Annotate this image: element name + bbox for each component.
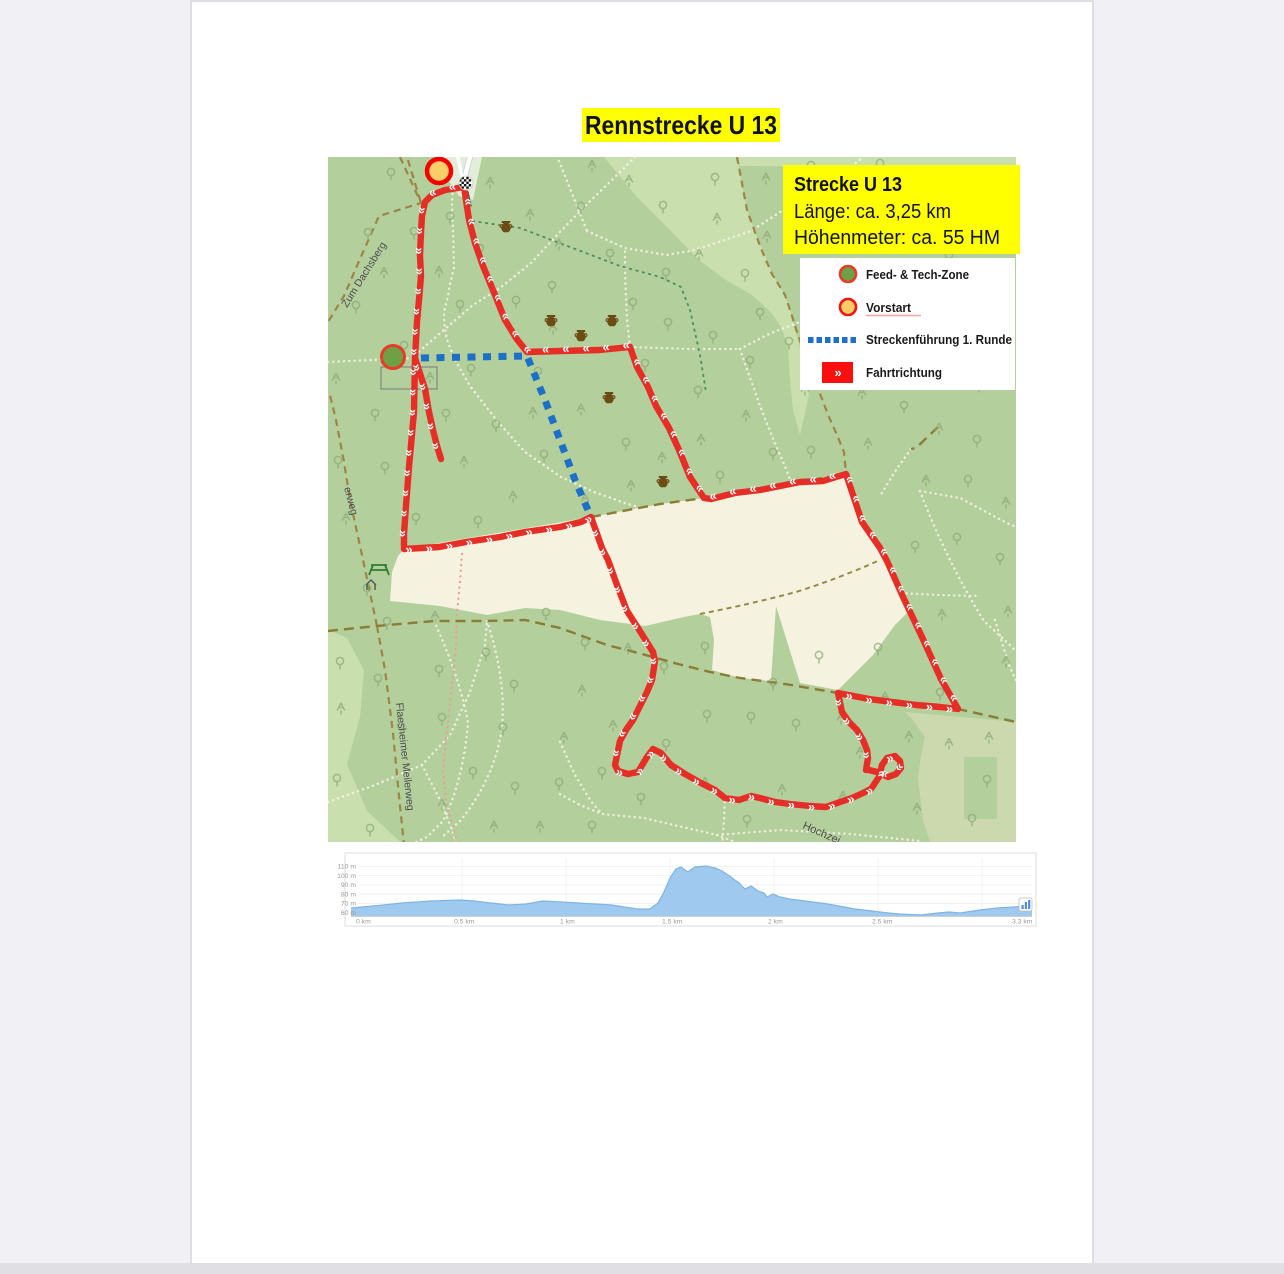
svg-text:70 m: 70 m [341,901,356,908]
svg-text:Streckenführung 1. Runde: Streckenführung 1. Runde [866,333,1012,347]
svg-text:100 m: 100 m [337,873,356,880]
svg-text:3.3 km: 3.3 km [1012,919,1033,926]
svg-text:Höhenmeter: ca. 55 HM: Höhenmeter: ca. 55 HM [794,227,1000,249]
svg-text:»: » [834,365,841,380]
svg-text:110 m: 110 m [338,864,357,871]
svg-text:0.5 km: 0.5 km [454,919,475,926]
svg-text:60 m: 60 m [341,910,356,917]
svg-text:1.5 km: 1.5 km [662,919,683,926]
svg-text:2.5 km: 2.5 km [872,919,893,926]
svg-text:Fahrtrichtung: Fahrtrichtung [866,366,942,380]
svg-text:2 km: 2 km [768,919,783,926]
svg-text:Feed- & Tech-Zone: Feed- & Tech-Zone [866,268,969,282]
svg-text:Strecke U 13: Strecke U 13 [794,174,902,196]
svg-text:Vorstart: Vorstart [866,301,912,315]
svg-text:1 km: 1 km [560,919,575,926]
svg-text:90 m: 90 m [341,882,356,889]
svg-text:0 km: 0 km [356,919,371,926]
svg-text:Rennstrecke U 13: Rennstrecke U 13 [585,110,777,140]
svg-text:80 m: 80 m [341,891,356,898]
svg-text:Länge: ca. 3,25 km: Länge: ca. 3,25 km [794,201,951,223]
